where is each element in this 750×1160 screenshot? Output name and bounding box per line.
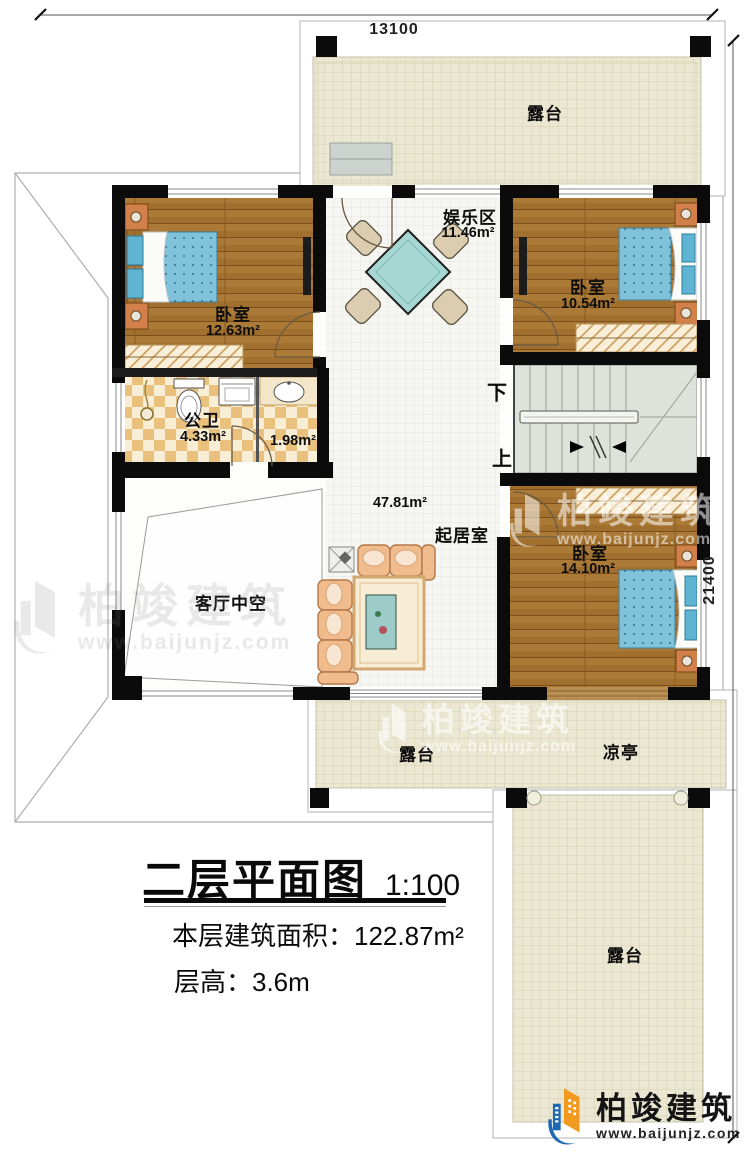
- label-terrace-bottom: 露台: [399, 741, 435, 766]
- label-bedroom-right-area: 10.54m²: [561, 296, 615, 312]
- column: [688, 788, 710, 808]
- brand-name: 柏竣建筑: [596, 1093, 741, 1126]
- column: [506, 788, 527, 808]
- wardrobe-left: [125, 345, 243, 370]
- label-entertainment-area: 11.46m²: [441, 225, 494, 241]
- label-terrace-se: 露台: [607, 942, 643, 967]
- label-bedroom-left-area: 12.63m²: [206, 323, 260, 339]
- label-terrace-top: 露台: [527, 100, 563, 125]
- brand-logo: 柏竣建筑 www.baijunjz.com: [538, 1086, 741, 1148]
- floor-plan-canvas: [0, 0, 750, 1160]
- tv-right-bedroom: [519, 237, 527, 295]
- sofa-set: [318, 545, 435, 684]
- dimension-width-label: 13100: [369, 21, 419, 39]
- title-underline: [144, 898, 446, 903]
- wardrobe-bottom: [576, 488, 697, 514]
- tv-left-bedroom: [303, 237, 311, 295]
- floor-area-line: 本层建筑面积：122.87m²: [172, 916, 464, 953]
- threshold: [547, 687, 668, 700]
- dimension-height-label: 21400: [701, 555, 719, 605]
- staircase: [514, 365, 697, 473]
- coffee-table: [366, 595, 396, 649]
- title-underline-thin: [144, 906, 446, 907]
- label-bedroom-bottom-area: 14.10m²: [561, 561, 615, 577]
- label-stairs-down: 下: [487, 377, 507, 406]
- label-bedroom-right: 卧室: [570, 274, 606, 299]
- wardrobe-right: [576, 324, 697, 352]
- brand-url: www.baijunjz.com: [596, 1125, 741, 1141]
- sink: [260, 377, 318, 405]
- column: [690, 36, 711, 57]
- label-washroom-area: 1.98m²: [270, 433, 316, 449]
- floor-plan-page: 13100 21400 露台 卧室 12.63m² 娱乐区 11.46m² 卧室…: [0, 0, 750, 1160]
- column: [310, 788, 329, 808]
- label-living: 起居室: [435, 522, 489, 547]
- label-bedroom-left: 卧室: [215, 301, 251, 326]
- label-bathroom: 公卫: [184, 407, 220, 432]
- label-stairs-up: 上: [492, 443, 512, 472]
- terrace-steps: [330, 143, 392, 175]
- floor-height-line: 层高：3.6m: [174, 962, 310, 999]
- terrace-top: [300, 21, 725, 196]
- void-outline: [124, 489, 322, 687]
- label-living-area: 47.81m²: [373, 495, 427, 511]
- terrace-bottom: [308, 690, 737, 1138]
- column: [316, 36, 337, 57]
- label-pavilion: 凉亭: [603, 739, 639, 764]
- washing-machine: [219, 378, 255, 405]
- brand-logo-icon: [538, 1086, 590, 1148]
- column-ornament: [527, 791, 541, 805]
- label-bathroom-area: 4.33m²: [180, 429, 226, 445]
- column-ornament: [674, 791, 688, 805]
- label-void: 客厅中空: [195, 590, 267, 615]
